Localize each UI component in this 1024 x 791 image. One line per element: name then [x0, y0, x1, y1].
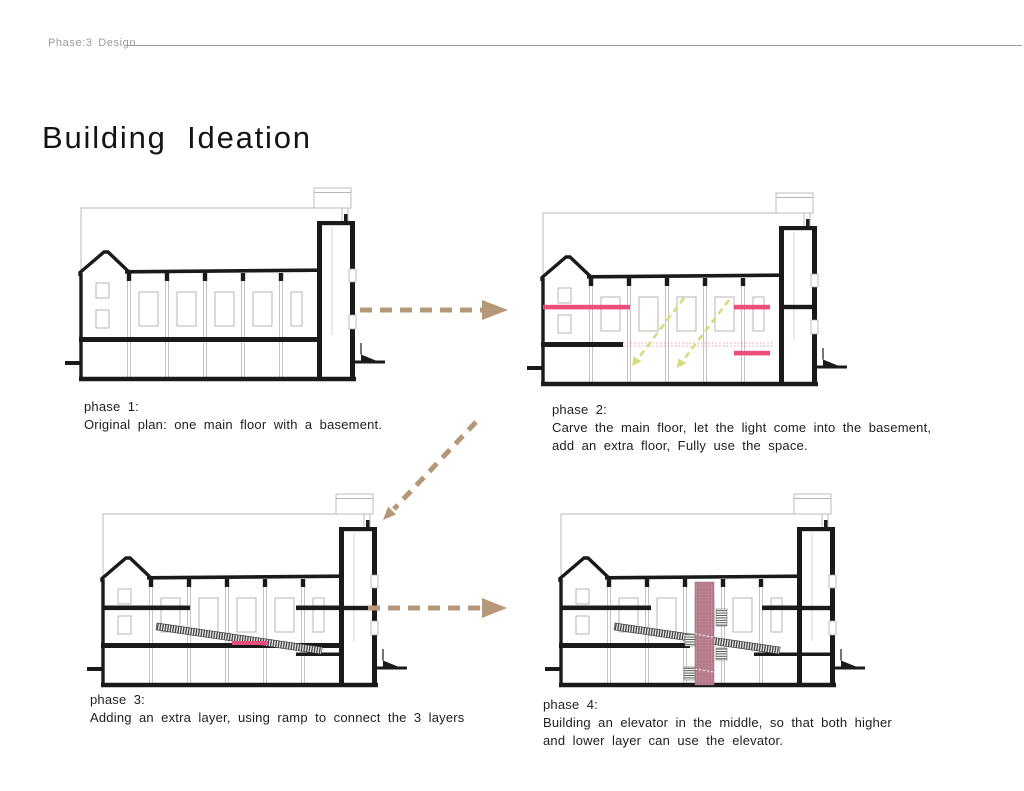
- elevator-shaft: [695, 582, 714, 685]
- phase-2-line-1: Carve the main floor, let the light come…: [552, 419, 931, 437]
- light-ray-arrows: [632, 298, 729, 368]
- phase-1-caption: phase 1: Original plan: one main floor w…: [84, 398, 382, 434]
- arrow-phase2-to-phase3-icon: [373, 416, 485, 529]
- arrow-phase3-to-phase4-icon: [366, 594, 511, 627]
- connecting-ramp: [156, 623, 322, 654]
- header-phase-label: Phase:3 Design: [48, 37, 136, 49]
- phase-2-caption: phase 2: Carve the main floor, let the l…: [552, 401, 931, 455]
- arrow-phase1-to-phase2-icon: [358, 296, 512, 329]
- tower-floor-slab: [784, 305, 812, 309]
- phase-2-label: phase 2:: [552, 401, 931, 419]
- phase-3-caption: phase 3: Adding an extra layer, using ra…: [90, 691, 464, 727]
- extra-layer-slabs: [103, 606, 372, 657]
- phase-4-caption: phase 4: Building an elevator in the mid…: [543, 696, 892, 750]
- phase-2-line-2: add an extra floor, Fully use the space.: [552, 437, 931, 455]
- phase-1-section-drawing: [60, 177, 392, 389]
- phase-2-section-drawing: [522, 182, 854, 394]
- phase-4-line-1: Building an elevator in the middle, so t…: [543, 714, 892, 732]
- new-floor-highlight-bars: [543, 305, 770, 356]
- page-title: Building Ideation: [42, 120, 312, 156]
- phase-3-section-drawing: [82, 483, 414, 695]
- phase-1-label: phase 1:: [84, 398, 382, 416]
- phase-3-line-1: Adding an extra layer, using ramp to con…: [90, 709, 464, 727]
- phase-1-line-1: Original plan: one main floor with a bas…: [84, 416, 382, 434]
- slide-building-ideation: Phase:3 Design Building Ideation: [0, 0, 1024, 791]
- ramp-highlight-bar: [232, 641, 268, 645]
- carved-floor-dotted-line: [623, 343, 774, 346]
- phase-4-section-drawing: [540, 483, 872, 695]
- phase-4-label: phase 4:: [543, 696, 892, 714]
- phase-3-label: phase 3:: [90, 691, 464, 709]
- header-rule: [126, 45, 1022, 46]
- phase-4-line-2: and lower layer can use the elevator.: [543, 732, 892, 750]
